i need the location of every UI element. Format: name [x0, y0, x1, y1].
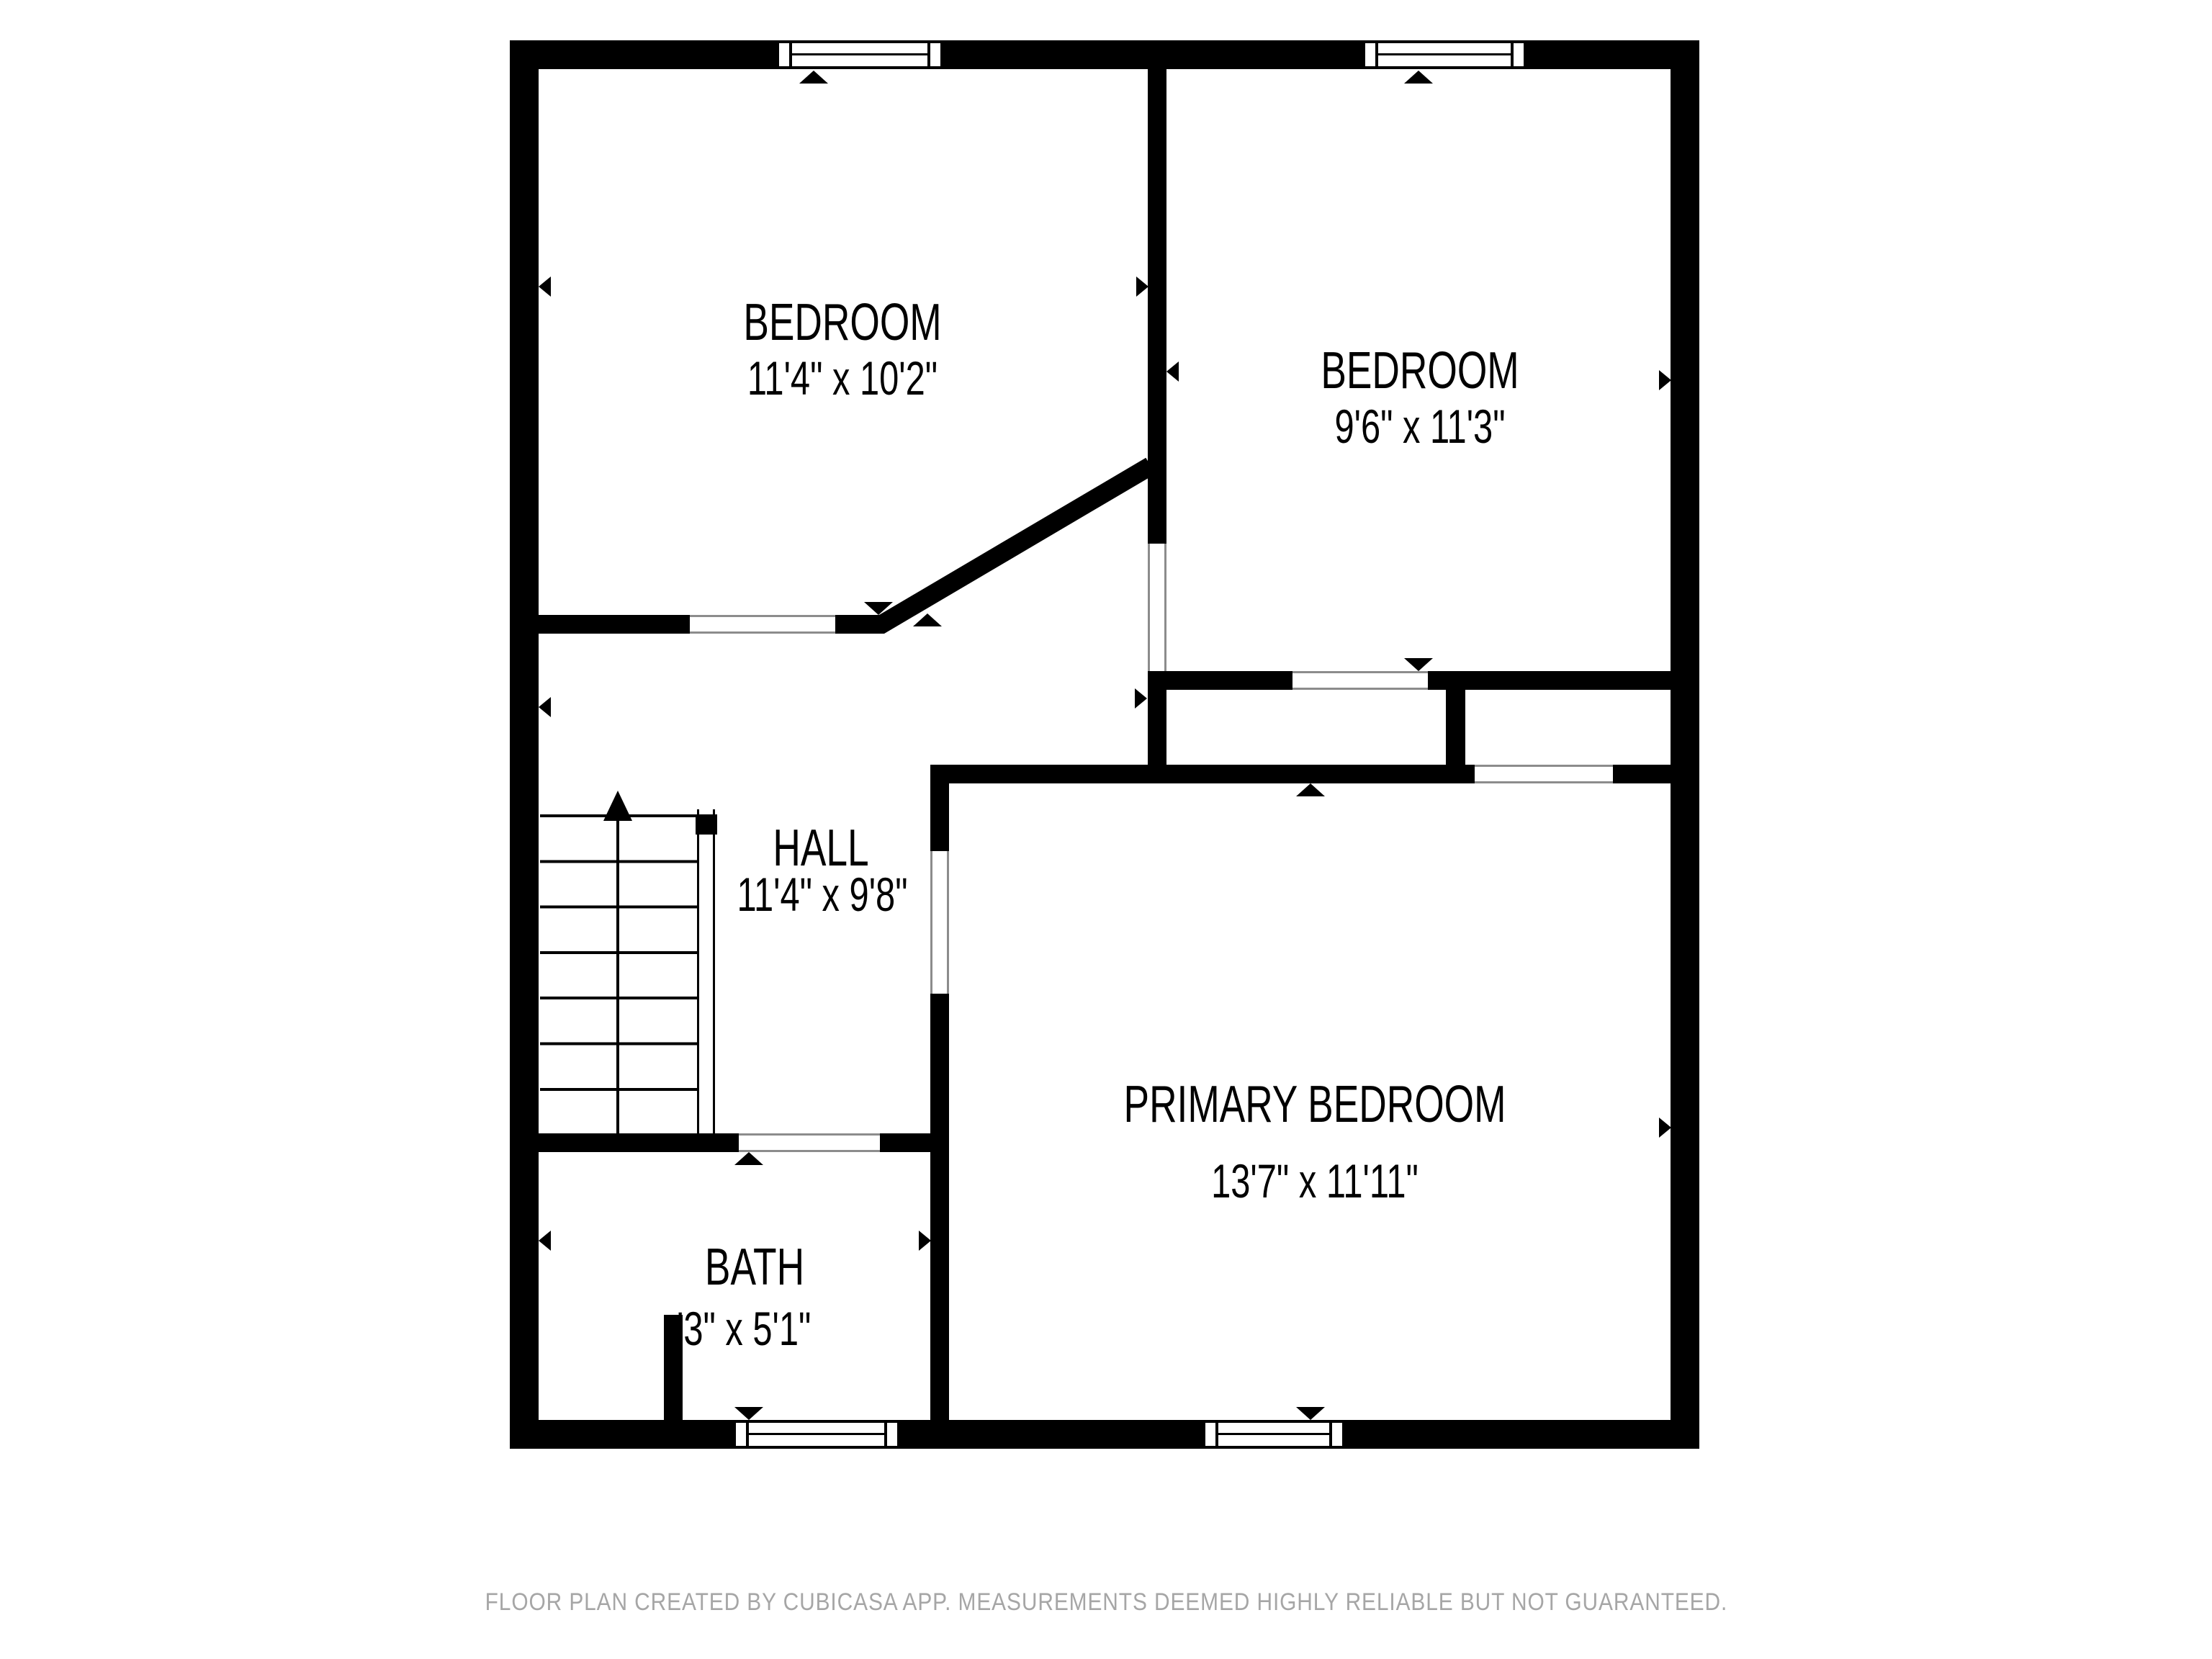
wall-outer-right — [1671, 40, 1699, 1449]
measure-arrow-right-icon — [919, 1231, 931, 1251]
window-bottom-bath — [733, 1420, 900, 1449]
wall-primary-left-upper — [930, 765, 949, 851]
stair-direction-arrow-icon — [603, 791, 632, 821]
window-bottom-primary — [1202, 1420, 1345, 1449]
window-mid-line — [791, 53, 929, 55]
wall-primary-top-right — [1613, 765, 1671, 783]
stair-rail-post — [696, 814, 717, 835]
door-frame-line — [1475, 781, 1613, 783]
door-frame-line — [947, 851, 949, 994]
wall-outer-bottom — [510, 1420, 1699, 1449]
room-dims-primary-bedroom: 13'7" x 11'11" — [1211, 1154, 1419, 1208]
room-dims-bedroom-top-right: 9'6" x 11'3" — [1334, 399, 1505, 454]
door-frame-line — [690, 615, 835, 617]
measure-arrow-left-icon — [539, 1231, 551, 1251]
measure-arrow-right-icon — [1659, 370, 1671, 390]
window-top-right — [1362, 40, 1527, 69]
wall-bath-top-left — [539, 1133, 739, 1152]
stair-rail — [697, 809, 699, 1133]
measure-arrow-up-icon — [1404, 71, 1433, 84]
measure-arrow-down-icon — [734, 1407, 763, 1420]
wall-outer-left — [510, 40, 539, 1449]
room-label-bedroom-top-left: BEDROOM — [743, 293, 941, 352]
window-mid-line — [1377, 53, 1512, 55]
wall-diagonal — [875, 458, 1156, 634]
room-dims-hall: 11'4" x 9'8" — [737, 867, 907, 922]
measure-arrow-left-icon — [539, 276, 551, 297]
door-frame-line — [1292, 688, 1428, 690]
measure-arrow-down-icon — [864, 602, 893, 615]
measure-arrow-left-icon — [1166, 361, 1179, 382]
footer-disclaimer-text: FLOOR PLAN CREATED BY CUBICASA APP. MEAS… — [485, 1588, 1727, 1617]
window-mid-line — [747, 1433, 886, 1435]
measure-arrow-up-icon — [913, 613, 942, 626]
wall-right-bedroom-bottom-left — [1166, 671, 1292, 690]
wall-closet-divider — [1446, 690, 1465, 765]
room-dims-bath: '3" x 5'1" — [677, 1301, 811, 1356]
wall-hall-top-left — [539, 615, 690, 634]
stair-rail — [713, 809, 715, 1133]
door-frame-line — [739, 1133, 880, 1136]
door-frame-line — [1475, 765, 1613, 767]
door-frame-line — [1164, 544, 1166, 671]
room-label-bath: BATH — [705, 1238, 804, 1297]
room-label-bedroom-top-right: BEDROOM — [1321, 341, 1519, 400]
door-frame-line — [1292, 671, 1428, 673]
floor-plan-canvas: BEDROOM 11'4" x 10'2" BEDROOM 9'6" x 11'… — [0, 0, 2212, 1659]
measure-arrow-up-icon — [734, 1152, 763, 1165]
measure-arrow-up-icon — [1296, 783, 1325, 796]
measure-arrow-down-icon — [1404, 658, 1433, 671]
footer-disclaimer: FLOOR PLAN CREATED BY CUBICASA APP. MEAS… — [0, 1588, 2212, 1617]
wall-primary-left-lower — [930, 994, 949, 1420]
measure-arrow-left-icon — [539, 697, 551, 717]
measure-arrow-up-icon — [799, 71, 828, 84]
window-mid-line — [1217, 1433, 1331, 1435]
door-frame-line — [1148, 544, 1150, 671]
wall-right-bedroom-bottom-right — [1428, 671, 1671, 690]
room-label-primary-bedroom: PRIMARY BEDROOM — [1124, 1075, 1506, 1134]
measure-arrow-right-icon — [1659, 1118, 1671, 1138]
room-dims-bedroom-top-left: 11'4" x 10'2" — [747, 351, 938, 405]
measure-arrow-right-icon — [1136, 276, 1148, 297]
door-frame-line — [690, 631, 835, 634]
wall-primary-top-left — [930, 765, 1475, 783]
stair-direction-line — [616, 817, 619, 1133]
measure-arrow-right-icon — [1135, 688, 1147, 709]
wall-bath-top-right — [880, 1133, 930, 1152]
measure-arrow-down-icon — [1296, 1407, 1325, 1420]
window-top-left — [776, 40, 943, 69]
door-frame-line — [930, 851, 932, 994]
